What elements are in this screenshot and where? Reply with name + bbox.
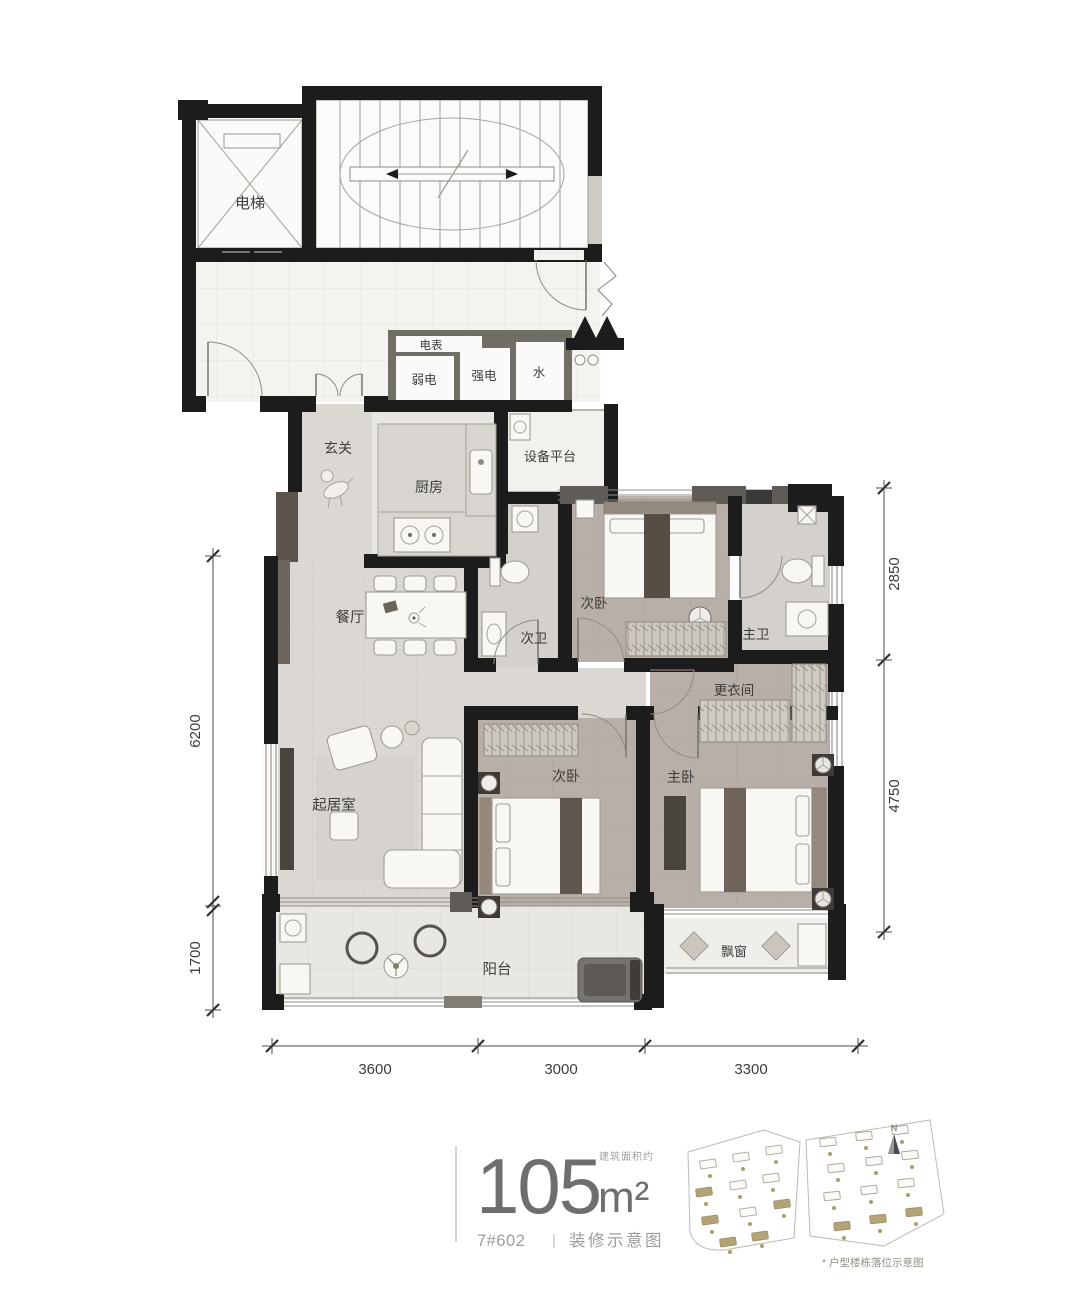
side-table [381,726,403,748]
area-prefix: 建筑面积约 [599,1150,654,1163]
bed-headboard [604,502,716,514]
dim-right-4750: 4750 [886,779,903,812]
platform-sink-icon [510,414,530,440]
room-label-bay-window: 飘窗 [721,944,747,959]
footer: 建筑面积约 105 m² 7#602 | 装修示意图 [456,1142,664,1250]
room-label-closet: 更衣间 [714,683,755,698]
dimension-left: 6200 1700 [187,548,221,1018]
plant-icon [812,888,834,910]
dim-left-6200: 6200 [187,714,204,747]
room-label-bedroom2-top: 次卧 [581,596,608,611]
pillow [796,796,809,836]
dining-cabinet [278,560,290,664]
dining-chair [374,576,396,591]
area-unit: m² [598,1173,649,1222]
bed-headboard [812,788,826,892]
room-label-strong-elec: 强电 [471,369,497,383]
room-label-dining: 餐厅 [336,609,365,626]
bed-runner [560,798,582,894]
site-note: * 户型楼栋落位示意图 [822,1256,924,1269]
unit-number: 7#602 [477,1232,525,1250]
site-buildings [696,1125,923,1247]
dim-left-1700: 1700 [187,941,204,974]
elevator-counterweight [224,134,280,148]
plant-icon [812,754,834,776]
dining-chair [404,640,426,655]
dimension-bottom: 3600 3000 3300 [262,1038,868,1078]
footer-caption: 装修示意图 [569,1231,664,1250]
side-table [405,721,419,735]
bed-runner [644,514,670,598]
room-label-kitchen: 厨房 [415,479,443,495]
dining-chair [404,576,426,591]
site-map: N * 户型楼栋落位示意图 [688,1120,944,1269]
dim-bottom-3300: 3300 [734,1061,767,1078]
coffee-table [330,812,358,840]
dining-table [366,592,466,638]
toilet-icon [812,556,824,586]
dresser [664,796,686,870]
fan-icon [478,772,500,794]
entry-floor [296,404,372,560]
floor-plan-drawing: 电梯 [0,0,1079,1301]
elevator-stair-core: 电梯 [198,100,588,248]
balcony-chair [347,933,377,963]
balcony-chair [415,926,445,956]
toilet-icon [490,558,500,586]
room-label-water: 水 [533,366,546,380]
gas-meter-icon [588,355,598,365]
kitchen-sink-icon [470,450,492,494]
room-label-balcony: 阳台 [483,961,512,978]
room-label-entry: 玄关 [324,440,352,456]
room-label-weak-elec: 弱电 [411,373,437,387]
bed-headboard [480,798,492,894]
bed [700,788,812,892]
bed-runner [724,788,746,892]
bay-corner-panel [798,924,826,966]
footer-separator: | [552,1232,556,1249]
dimension-right: 2850 4750 [876,480,903,940]
pillow [496,804,510,842]
area-value: 105 [476,1142,600,1230]
stair-niche [588,176,602,244]
room-label-master-bedroom: 主卧 [667,769,695,785]
break-symbol [598,262,616,316]
washer-icon [512,506,538,532]
room-label-bath2: 次卫 [521,631,548,646]
room-label-elevator: 电梯 [235,195,265,212]
gas-meter-icon [575,355,585,365]
nightstand [576,500,594,518]
vanity-icon [482,612,506,656]
sofa-chaise [384,850,460,888]
pillow [666,519,704,533]
north-label: N [891,1123,898,1133]
shower-niche [746,490,772,504]
room-label-master-bath: 主卫 [743,627,770,642]
floor-plan-page: 电梯 [0,0,1079,1301]
dim-bottom-3600: 3600 [358,1061,391,1078]
balcony-cabinet [280,914,306,942]
dim-right-2850: 2850 [886,557,903,590]
room-label-bedroom2: 次卧 [552,768,580,784]
kitchen-counter [378,424,474,518]
entry-cabinet [276,492,298,562]
dim-bottom-3000: 3000 [544,1061,577,1078]
pillow [796,844,809,884]
stove-icon [394,518,450,552]
tv-console [280,748,294,870]
treadmill-icon [578,958,642,1002]
pillow [496,848,510,886]
dining-chair [374,640,396,655]
room-label-platform: 设备平台 [524,449,576,464]
room-label-meter: 电表 [420,338,443,352]
vanity-icon [786,602,828,636]
balcony-cabinet [280,964,310,994]
room-label-living: 起居室 [312,797,356,814]
dining-chair [434,576,456,591]
fan-icon [478,896,500,918]
pillow [610,519,648,533]
dining-chair [434,640,456,655]
